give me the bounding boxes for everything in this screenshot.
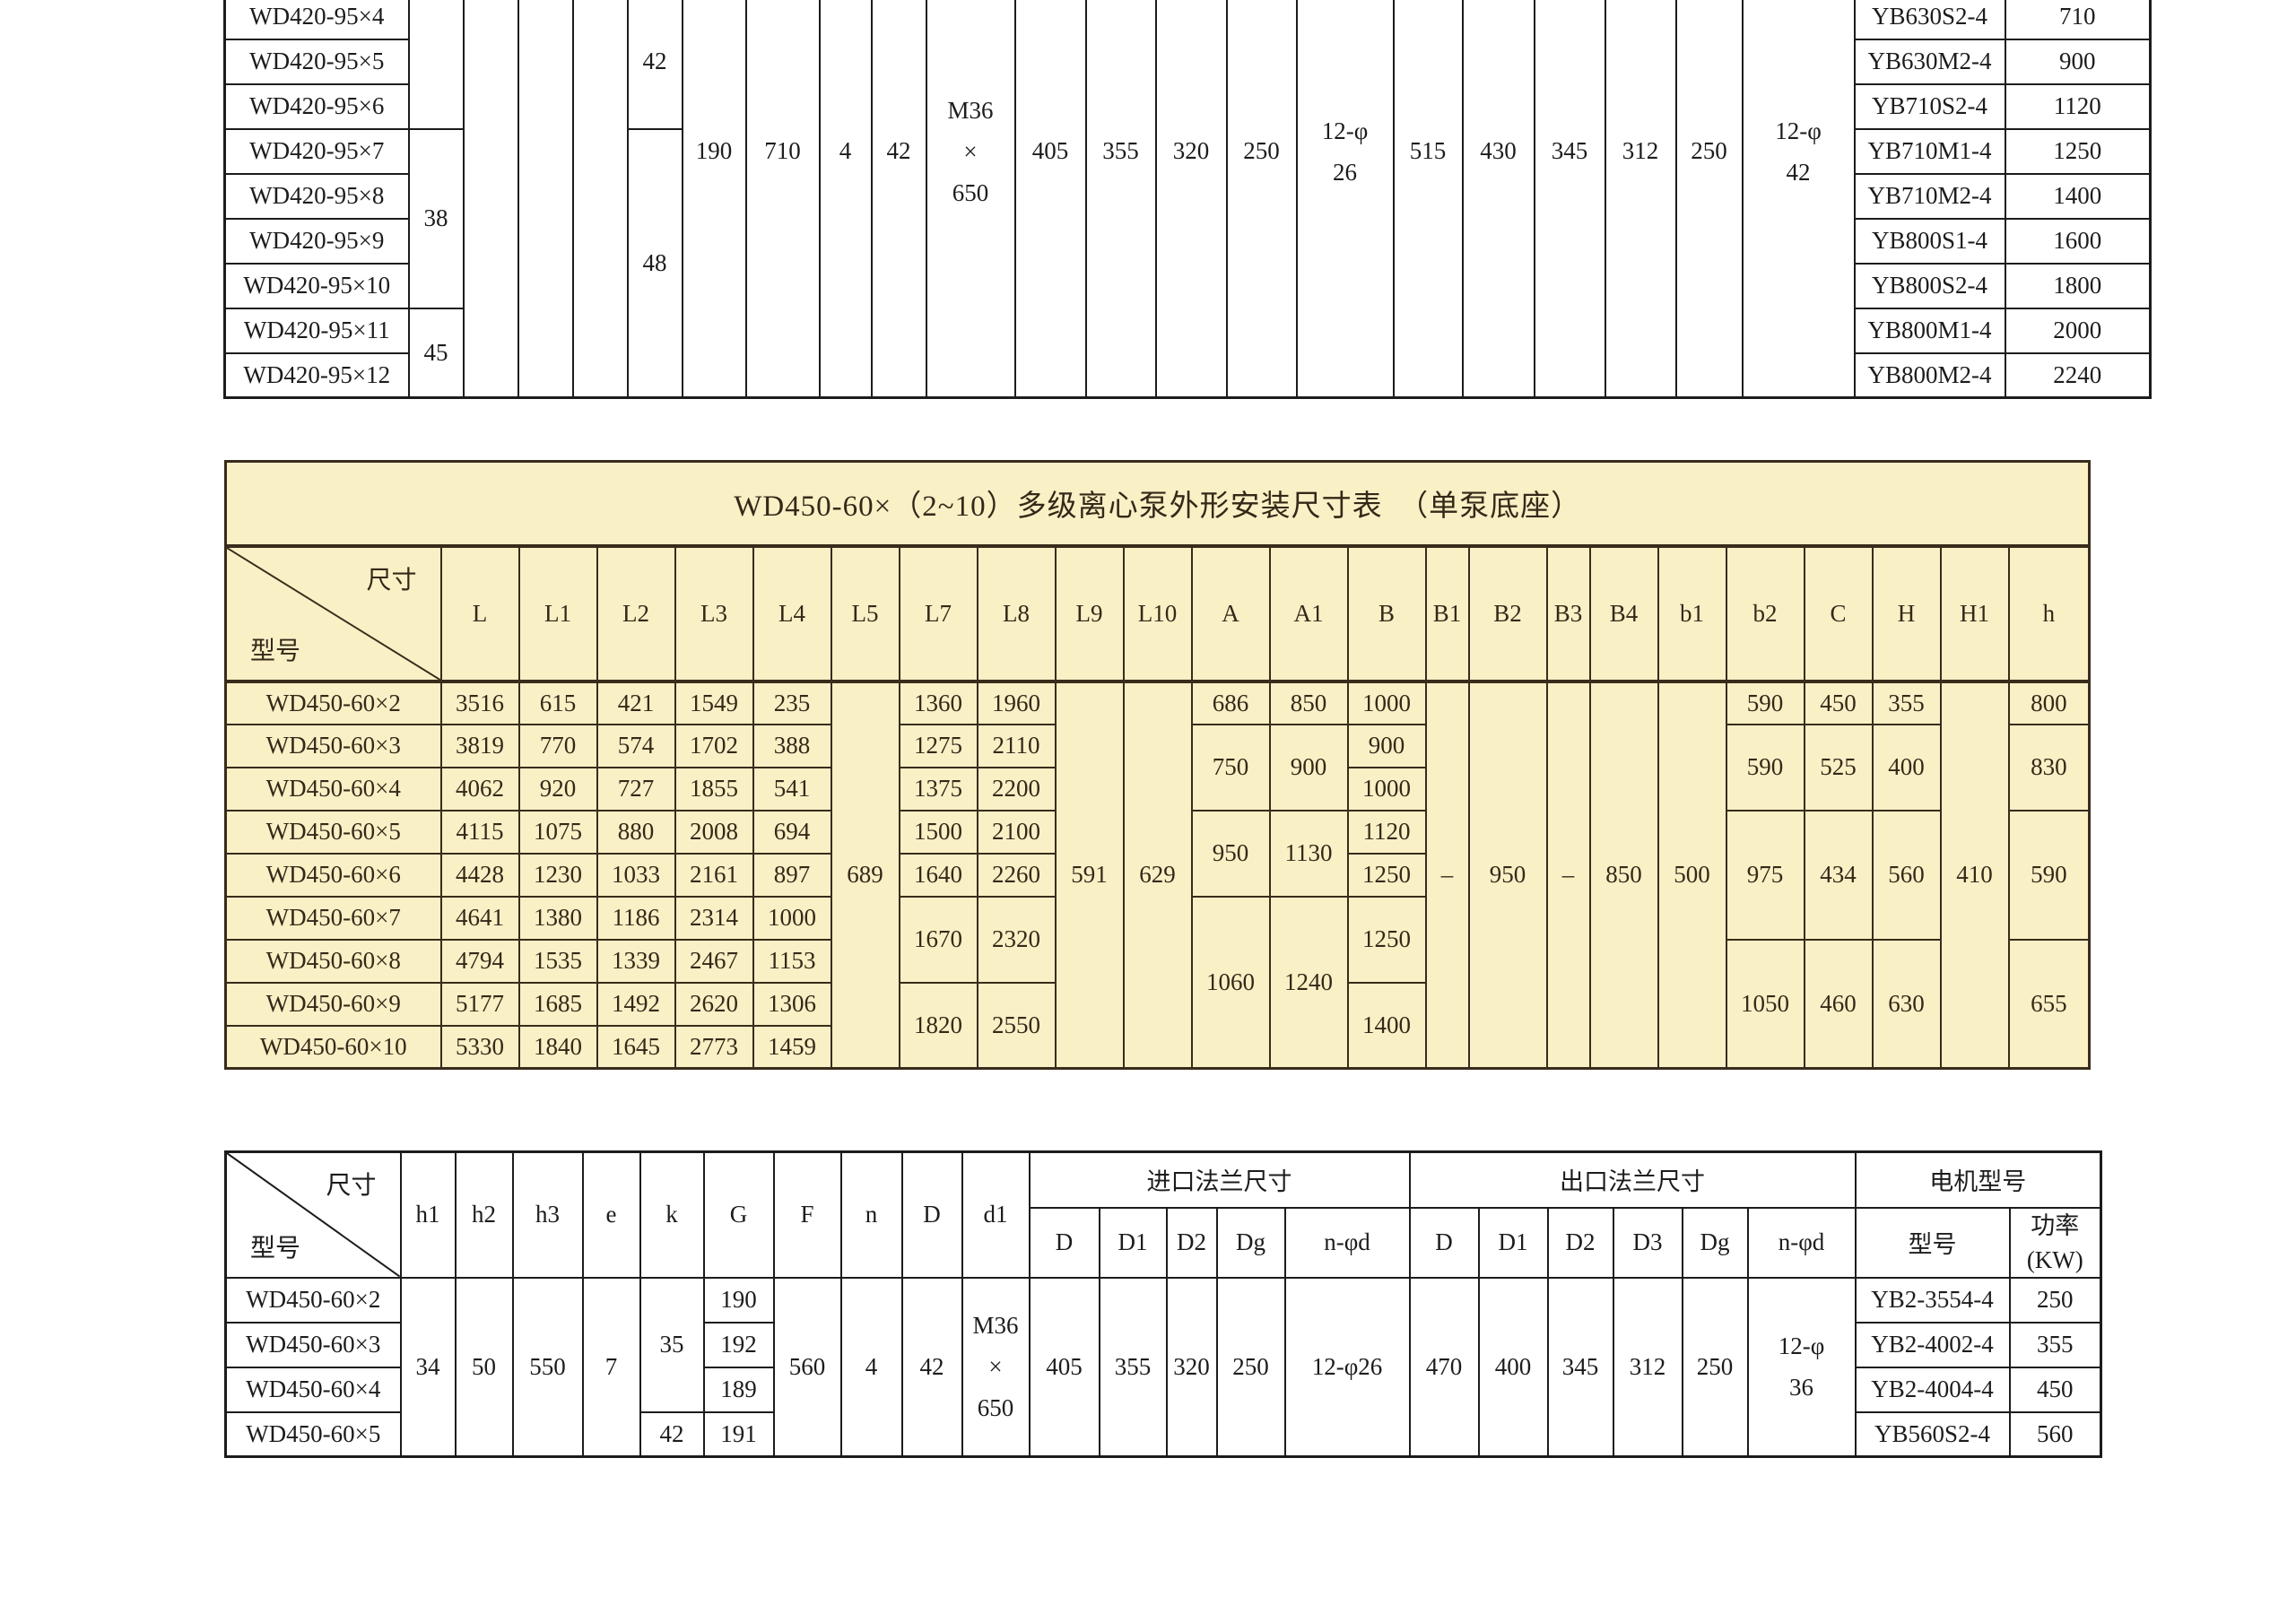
cell-n: 4 bbox=[820, 0, 872, 398]
cell-L2: 1492 bbox=[597, 983, 675, 1026]
cell-L8: 2550 bbox=[978, 983, 1056, 1069]
corner-label-model: 型号 bbox=[250, 631, 300, 667]
cell-pump-model: WD450-60×3 bbox=[226, 1323, 401, 1367]
cell-motor-power: 1400 bbox=[2005, 174, 2151, 219]
cell-G: 190 bbox=[704, 1278, 774, 1323]
cell-B2: 950 bbox=[1469, 681, 1547, 1069]
cell-pump-model: WD420-95×11 bbox=[225, 308, 409, 353]
cell-A: 686 bbox=[1192, 681, 1270, 725]
cell-pump-model: WD420-95×12 bbox=[225, 353, 409, 398]
col-header-outlet-nphid: n-φd bbox=[1748, 1208, 1856, 1278]
cell-motor-model: YB800M2-4 bbox=[1855, 353, 2005, 398]
col-header-L3: L3 bbox=[675, 546, 753, 681]
col-header-A1: A1 bbox=[1270, 546, 1348, 681]
col-header-motor-power: 功率 (KW) bbox=[2010, 1208, 2101, 1278]
cell-L4: 1306 bbox=[753, 983, 831, 1026]
cell-L3: 2314 bbox=[675, 897, 753, 940]
cell-b2: 1050 bbox=[1726, 940, 1805, 1069]
cell-motor-power: 1800 bbox=[2005, 264, 2151, 308]
cell-motor-model: YB800S1-4 bbox=[1855, 219, 2005, 264]
cell-motor-power: 450 bbox=[2010, 1367, 2101, 1412]
nphid-line: 12-φ bbox=[1749, 1325, 1855, 1367]
cell-L4: 541 bbox=[753, 768, 831, 811]
cell-L: 5330 bbox=[441, 1026, 519, 1069]
cell-L2: 1645 bbox=[597, 1026, 675, 1069]
cell-motor-power: 1250 bbox=[2005, 129, 2151, 174]
cell-pump-model: WD420-95×7 bbox=[225, 129, 409, 174]
power-header-line: 功率 bbox=[2011, 1209, 2100, 1243]
cell-D: 42 bbox=[902, 1278, 962, 1457]
col-header-L2: L2 bbox=[597, 546, 675, 681]
cell-h: 830 bbox=[2009, 725, 2090, 811]
col-header-D: D bbox=[902, 1152, 962, 1278]
col-header-outlet-D3: D3 bbox=[1613, 1208, 1683, 1278]
cell-L4: 1153 bbox=[753, 940, 831, 983]
cell-L2: 1339 bbox=[597, 940, 675, 983]
d1-line: M36 bbox=[927, 90, 1014, 131]
cell-L4: 897 bbox=[753, 854, 831, 897]
cell-B: 1400 bbox=[1348, 983, 1426, 1069]
table-row: 尺寸 型号 h1 h2 h3 e k G F n D d1 进口法兰尺寸 出口法… bbox=[226, 1152, 2101, 1208]
cell-pump-model: WD420-95×4 bbox=[225, 0, 409, 39]
col-header-inlet-D1: D1 bbox=[1100, 1208, 1167, 1278]
cell-outlet-D3: 312 bbox=[1605, 0, 1676, 398]
col-header-inlet-Dg: Dg bbox=[1217, 1208, 1285, 1278]
cell-H: 630 bbox=[1873, 940, 1941, 1069]
corner-header-cell: 尺寸 型号 bbox=[226, 1152, 401, 1278]
cell-inlet-Dg: 250 bbox=[1227, 0, 1297, 398]
cell-outlet-D: 470 bbox=[1410, 1278, 1479, 1457]
cell-inlet-D2: 320 bbox=[1167, 1278, 1217, 1457]
col-header-d1: d1 bbox=[962, 1152, 1030, 1278]
d1-line: × bbox=[927, 131, 1014, 172]
col-header-G: G bbox=[704, 1152, 774, 1278]
cell-b2: 590 bbox=[1726, 681, 1805, 725]
nphid-line: 12-φ bbox=[1744, 110, 1854, 152]
cell-A: 1060 bbox=[1192, 897, 1270, 1069]
cell-motor-power: 250 bbox=[2010, 1278, 2101, 1323]
cell-inlet-D: 405 bbox=[1015, 0, 1086, 398]
cell-C: 450 bbox=[1805, 681, 1873, 725]
col-header-B: B bbox=[1348, 546, 1426, 681]
cell-h: 655 bbox=[2009, 940, 2090, 1069]
col-header-H: H bbox=[1873, 546, 1941, 681]
cell-motor-model: YB800S2-4 bbox=[1855, 264, 2005, 308]
cell-motor-power: 710 bbox=[2005, 0, 2151, 39]
cell-outlet-Dg: 250 bbox=[1683, 1278, 1748, 1457]
wd420-95-dimension-table: 190 710 4 42 M36 × 650 405 355 320 250 1… bbox=[223, 0, 2152, 399]
cell-L3: 1549 bbox=[675, 681, 753, 725]
cell-L4: 1000 bbox=[753, 897, 831, 940]
col-header-L5: L5 bbox=[831, 546, 900, 681]
cell-L3: 2161 bbox=[675, 854, 753, 897]
cell-b2: 975 bbox=[1726, 811, 1805, 940]
col-header-outlet-Dg: Dg bbox=[1683, 1208, 1748, 1278]
col-header-L10: L10 bbox=[1124, 546, 1192, 681]
d1-line: 650 bbox=[927, 172, 1014, 213]
col-header-b1: b1 bbox=[1658, 546, 1726, 681]
cell-A1: 850 bbox=[1270, 681, 1348, 725]
cell-outlet-D2: 345 bbox=[1535, 0, 1605, 398]
cell-C: 525 bbox=[1805, 725, 1873, 811]
cell-L10: 629 bbox=[1124, 681, 1192, 1069]
col-header-B4: B4 bbox=[1590, 546, 1658, 681]
cell-H: 560 bbox=[1873, 811, 1941, 940]
cell-B: 1250 bbox=[1348, 854, 1426, 897]
cell-pump-model: WD420-95×6 bbox=[225, 84, 409, 129]
cell-L1: 920 bbox=[519, 768, 597, 811]
group-header-outlet-flange: 出口法兰尺寸 bbox=[1410, 1152, 1856, 1208]
cell-h2 bbox=[464, 0, 518, 398]
cell-motor-power: 560 bbox=[2010, 1412, 2101, 1457]
cell-L4: 388 bbox=[753, 725, 831, 768]
group-header-inlet-flange: 进口法兰尺寸 bbox=[1030, 1152, 1410, 1208]
cell-h3: 550 bbox=[513, 1278, 583, 1457]
cell-F: 560 bbox=[774, 1278, 841, 1457]
cell-motor-model: YB710M1-4 bbox=[1855, 129, 2005, 174]
cell-B: 1000 bbox=[1348, 681, 1426, 725]
cell-B3: – bbox=[1547, 681, 1590, 1069]
cell-inlet-D1: 355 bbox=[1086, 0, 1156, 398]
cell-G: 190 bbox=[683, 0, 746, 398]
cell-L: 3516 bbox=[441, 681, 519, 725]
cell-n: 4 bbox=[841, 1278, 902, 1457]
cell-A1: 1130 bbox=[1270, 811, 1348, 897]
cell-L3: 1855 bbox=[675, 768, 753, 811]
cell-L2: 1033 bbox=[597, 854, 675, 897]
cell-motor-power: 1120 bbox=[2005, 84, 2151, 129]
cell-L: 4428 bbox=[441, 854, 519, 897]
col-header-h3: h3 bbox=[513, 1152, 583, 1278]
col-header-n: n bbox=[841, 1152, 902, 1278]
cell-B: 1000 bbox=[1348, 768, 1426, 811]
table-row: WD450-60×2 3516 615 421 1549 235 689 136… bbox=[226, 681, 2090, 725]
cell-motor-model: YB2-3554-4 bbox=[1856, 1278, 2010, 1323]
cell-pump-model: WD450-60×6 bbox=[226, 854, 441, 897]
cell-d1: M36 × 650 bbox=[926, 0, 1015, 398]
cell-L2: 421 bbox=[597, 681, 675, 725]
col-header-L9: L9 bbox=[1056, 546, 1124, 681]
cell-L2: 727 bbox=[597, 768, 675, 811]
cell-h1: 45 bbox=[409, 308, 464, 398]
cell-pump-model: WD420-95×8 bbox=[225, 174, 409, 219]
cell-motor-power: 2240 bbox=[2005, 353, 2151, 398]
cell-L: 4641 bbox=[441, 897, 519, 940]
cell-B1: – bbox=[1426, 681, 1469, 1069]
col-header-inlet-nphid: n-φd bbox=[1285, 1208, 1410, 1278]
corner-header-cell: 尺寸 型号 bbox=[226, 546, 441, 681]
cell-pump-model: WD450-60×5 bbox=[226, 1412, 401, 1457]
d1-line: M36 bbox=[963, 1305, 1029, 1346]
col-header-h: h bbox=[2009, 546, 2090, 681]
col-header-motor-model: 型号 bbox=[1856, 1208, 2010, 1278]
cell-G: 192 bbox=[704, 1323, 774, 1367]
corner-label-dimension: 尺寸 bbox=[366, 560, 416, 596]
cell-L1: 1840 bbox=[519, 1026, 597, 1069]
cell-L1: 1230 bbox=[519, 854, 597, 897]
cell-inlet-nphid: 12-φ26 bbox=[1285, 1278, 1410, 1457]
col-header-k: k bbox=[640, 1152, 704, 1278]
cell-motor-model: YB710M2-4 bbox=[1855, 174, 2005, 219]
cell-motor-power: 1600 bbox=[2005, 219, 2151, 264]
col-header-L: L bbox=[441, 546, 519, 681]
col-header-L8: L8 bbox=[978, 546, 1056, 681]
cell-outlet-D3: 312 bbox=[1613, 1278, 1683, 1457]
col-header-C: C bbox=[1805, 546, 1873, 681]
cell-inlet-D1: 355 bbox=[1100, 1278, 1167, 1457]
cell-L7: 1375 bbox=[900, 768, 978, 811]
cell-inlet-D2: 320 bbox=[1156, 0, 1227, 398]
cell-e: 7 bbox=[583, 1278, 640, 1457]
cell-A1: 900 bbox=[1270, 725, 1348, 811]
cell-h1: 34 bbox=[401, 1278, 456, 1457]
cell-L7: 1640 bbox=[900, 854, 978, 897]
cell-B4: 850 bbox=[1590, 681, 1658, 1069]
cell-L4: 1459 bbox=[753, 1026, 831, 1069]
cell-h1: 38 bbox=[409, 129, 464, 308]
cell-outlet-D1: 400 bbox=[1479, 1278, 1548, 1457]
cell-pump-model: WD450-60×4 bbox=[226, 1367, 401, 1412]
cell-pump-model: WD450-60×2 bbox=[226, 1278, 401, 1323]
cell-motor-power: 355 bbox=[2010, 1323, 2101, 1367]
cell-k: 42 bbox=[640, 1412, 704, 1457]
wd450-60-dimension-table: WD450-60×（2~10）多级离心泵外形安装尺寸表 （单泵底座） 尺寸 型号… bbox=[224, 460, 2091, 1070]
cell-B: 900 bbox=[1348, 725, 1426, 768]
cell-A: 950 bbox=[1192, 811, 1270, 897]
cell-G: 191 bbox=[704, 1412, 774, 1457]
cell-d1: M36 × 650 bbox=[962, 1278, 1030, 1457]
cell-D: 42 bbox=[872, 0, 926, 398]
nphid-line: 12-φ bbox=[1298, 110, 1393, 152]
cell-H1: 410 bbox=[1941, 681, 2009, 1069]
cell-L1: 1075 bbox=[519, 811, 597, 854]
col-header-L1: L1 bbox=[519, 546, 597, 681]
cell-k: 35 bbox=[640, 1278, 704, 1412]
d1-line: × bbox=[963, 1346, 1029, 1387]
table-row: WD450-60×2 34 50 550 7 35 190 560 4 42 M… bbox=[226, 1278, 2101, 1323]
cell-L7: 1670 bbox=[900, 897, 978, 983]
wd450-60-flange-motor-table: 尺寸 型号 h1 h2 h3 e k G F n D d1 进口法兰尺寸 出口法… bbox=[224, 1150, 2102, 1458]
cell-pump-model: WD420-95×9 bbox=[225, 219, 409, 264]
col-header-inlet-D: D bbox=[1030, 1208, 1100, 1278]
cell-L8: 1960 bbox=[978, 681, 1056, 725]
pump-specification-page: 190 710 4 42 M36 × 650 405 355 320 250 1… bbox=[0, 0, 2296, 1623]
cell-motor-model: YB2-4002-4 bbox=[1856, 1323, 2010, 1367]
cell-pump-model: WD420-95×10 bbox=[225, 264, 409, 308]
cell-outlet-nphid: 12-φ 36 bbox=[1748, 1278, 1856, 1457]
cell-b2: 590 bbox=[1726, 725, 1805, 811]
cell-A1: 1240 bbox=[1270, 897, 1348, 1069]
cell-L7: 1360 bbox=[900, 681, 978, 725]
cell-pump-model: WD450-60×3 bbox=[226, 725, 441, 768]
cell-motor-power: 2000 bbox=[2005, 308, 2151, 353]
cell-L8: 2110 bbox=[978, 725, 1056, 768]
nphid-line: 36 bbox=[1749, 1367, 1855, 1408]
power-header-line: (KW) bbox=[2011, 1243, 2100, 1277]
cell-inlet-D: 405 bbox=[1030, 1278, 1100, 1457]
col-header-h1: h1 bbox=[401, 1152, 456, 1278]
cell-k-upper: 42 bbox=[628, 0, 683, 129]
cell-L: 4794 bbox=[441, 940, 519, 983]
cell-pump-model: WD450-60×9 bbox=[226, 983, 441, 1026]
cell-outlet-D: 515 bbox=[1394, 0, 1463, 398]
cell-pump-model: WD450-60×10 bbox=[226, 1026, 441, 1069]
col-header-outlet-D2: D2 bbox=[1548, 1208, 1613, 1278]
col-header-outlet-D1: D1 bbox=[1479, 1208, 1548, 1278]
cell-L1: 770 bbox=[519, 725, 597, 768]
cell-L3: 2620 bbox=[675, 983, 753, 1026]
cell-L1: 1380 bbox=[519, 897, 597, 940]
cell-L8: 2320 bbox=[978, 897, 1056, 983]
cell-L7: 1275 bbox=[900, 725, 978, 768]
cell-L2: 880 bbox=[597, 811, 675, 854]
col-header-H1: H1 bbox=[1941, 546, 2009, 681]
cell-H: 400 bbox=[1873, 725, 1941, 811]
cell-outlet-D1: 430 bbox=[1463, 0, 1535, 398]
cell-e bbox=[573, 0, 628, 398]
cell-L7: 1820 bbox=[900, 983, 978, 1069]
cell-h3 bbox=[518, 0, 573, 398]
corner-label-model: 型号 bbox=[250, 1228, 300, 1264]
cell-G: 189 bbox=[704, 1367, 774, 1412]
cell-L: 5177 bbox=[441, 983, 519, 1026]
cell-inlet-Dg: 250 bbox=[1217, 1278, 1285, 1457]
cell-L: 4062 bbox=[441, 768, 519, 811]
col-header-B3: B3 bbox=[1547, 546, 1590, 681]
table-row: 尺寸 型号 L L1 L2 L3 L4 L5 L7 L8 L9 L10 A A1… bbox=[226, 546, 2090, 681]
cell-motor-model: YB800M1-4 bbox=[1855, 308, 2005, 353]
cell-C: 460 bbox=[1805, 940, 1873, 1069]
cell-outlet-Dg: 250 bbox=[1676, 0, 1743, 398]
col-header-e: e bbox=[583, 1152, 640, 1278]
cell-pump-model: WD450-60×8 bbox=[226, 940, 441, 983]
col-header-A: A bbox=[1192, 546, 1270, 681]
cell-outlet-D2: 345 bbox=[1548, 1278, 1613, 1457]
cell-inlet-nphid: 12-φ 26 bbox=[1297, 0, 1394, 398]
cell-L1: 1535 bbox=[519, 940, 597, 983]
cell-L3: 2008 bbox=[675, 811, 753, 854]
cell-motor-model: YB560S2-4 bbox=[1856, 1412, 2010, 1457]
cell-motor-power: 900 bbox=[2005, 39, 2151, 84]
cell-F: 710 bbox=[746, 0, 820, 398]
cell-L4: 235 bbox=[753, 681, 831, 725]
cell-pump-model: WD420-95×5 bbox=[225, 39, 409, 84]
cell-h1-upper bbox=[409, 0, 464, 129]
cell-motor-model: YB630M2-4 bbox=[1855, 39, 2005, 84]
col-header-h2: h2 bbox=[456, 1152, 513, 1278]
cell-L8: 2200 bbox=[978, 768, 1056, 811]
cell-pump-model: WD450-60×7 bbox=[226, 897, 441, 940]
col-header-B2: B2 bbox=[1469, 546, 1547, 681]
cell-L: 4115 bbox=[441, 811, 519, 854]
col-header-L4: L4 bbox=[753, 546, 831, 681]
cell-motor-model: YB710S2-4 bbox=[1855, 84, 2005, 129]
d1-line: 650 bbox=[963, 1387, 1029, 1428]
cell-motor-model: YB2-4004-4 bbox=[1856, 1367, 2010, 1412]
col-header-L7: L7 bbox=[900, 546, 978, 681]
wd420-table-viewport: 190 710 4 42 M36 × 650 405 355 320 250 1… bbox=[223, 0, 2155, 400]
cell-H: 355 bbox=[1873, 681, 1941, 725]
cell-L: 3819 bbox=[441, 725, 519, 768]
col-header-inlet-D2: D2 bbox=[1167, 1208, 1217, 1278]
cell-h: 590 bbox=[2009, 811, 2090, 940]
cell-L9: 591 bbox=[1056, 681, 1124, 1069]
cell-B: 1250 bbox=[1348, 897, 1426, 983]
cell-C: 434 bbox=[1805, 811, 1873, 940]
cell-A: 750 bbox=[1192, 725, 1270, 811]
col-header-B1: B1 bbox=[1426, 546, 1469, 681]
table-row: WD450-60×（2~10）多级离心泵外形安装尺寸表 （单泵底座） bbox=[226, 462, 2090, 546]
col-header-outlet-D: D bbox=[1410, 1208, 1479, 1278]
col-header-F: F bbox=[774, 1152, 841, 1278]
group-header-motor: 电机型号 bbox=[1856, 1152, 2101, 1208]
cell-L5: 689 bbox=[831, 681, 900, 1069]
cell-L8: 2260 bbox=[978, 854, 1056, 897]
cell-L2: 1186 bbox=[597, 897, 675, 940]
cell-k-lower: 48 bbox=[628, 129, 683, 398]
cell-pump-model: WD450-60×4 bbox=[226, 768, 441, 811]
col-header-b2: b2 bbox=[1726, 546, 1805, 681]
cell-L3: 2467 bbox=[675, 940, 753, 983]
cell-L1: 1685 bbox=[519, 983, 597, 1026]
cell-h: 800 bbox=[2009, 681, 2090, 725]
cell-L3: 2773 bbox=[675, 1026, 753, 1069]
cell-L7: 1500 bbox=[900, 811, 978, 854]
cell-L3: 1702 bbox=[675, 725, 753, 768]
cell-B: 1120 bbox=[1348, 811, 1426, 854]
cell-L4: 694 bbox=[753, 811, 831, 854]
cell-h2: 50 bbox=[456, 1278, 513, 1457]
cell-pump-model: WD450-60×5 bbox=[226, 811, 441, 854]
cell-pump-model: WD450-60×2 bbox=[226, 681, 441, 725]
table-title: WD450-60×（2~10）多级离心泵外形安装尺寸表 （单泵底座） bbox=[226, 462, 2090, 546]
corner-label-dimension: 尺寸 bbox=[326, 1166, 376, 1202]
cell-L8: 2100 bbox=[978, 811, 1056, 854]
nphid-line: 42 bbox=[1744, 152, 1854, 193]
cell-L1: 615 bbox=[519, 681, 597, 725]
cell-motor-model: YB630S2-4 bbox=[1855, 0, 2005, 39]
cell-b1: 500 bbox=[1658, 681, 1726, 1069]
cell-L2: 574 bbox=[597, 725, 675, 768]
nphid-line: 26 bbox=[1298, 152, 1393, 193]
cell-outlet-nphid: 12-φ 42 bbox=[1743, 0, 1855, 398]
